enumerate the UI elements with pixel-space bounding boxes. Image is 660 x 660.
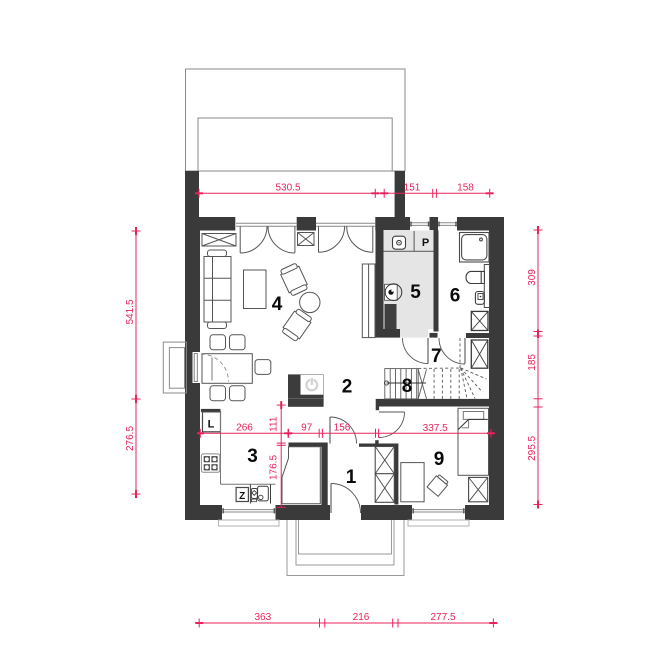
svg-text:Z: Z	[239, 491, 245, 502]
svg-text:158: 158	[457, 183, 474, 194]
svg-text:277.5: 277.5	[430, 612, 455, 623]
svg-text:1: 1	[346, 467, 357, 488]
svg-text:L: L	[208, 419, 215, 431]
svg-text:97: 97	[301, 422, 313, 433]
svg-text:176.5: 176.5	[268, 455, 279, 480]
svg-text:216: 216	[353, 612, 370, 623]
svg-text:4: 4	[272, 294, 283, 315]
svg-text:276.5: 276.5	[125, 426, 136, 451]
svg-text:309: 309	[527, 269, 538, 286]
svg-text:2: 2	[342, 377, 353, 398]
svg-text:295.5: 295.5	[527, 435, 538, 460]
svg-text:3: 3	[247, 446, 258, 467]
svg-text:151: 151	[404, 183, 421, 194]
svg-text:337.5: 337.5	[423, 423, 448, 434]
svg-text:111: 111	[268, 416, 279, 432]
svg-text:185: 185	[527, 354, 538, 371]
svg-text:156: 156	[334, 423, 351, 434]
svg-text:5: 5	[410, 282, 421, 303]
svg-text:8: 8	[402, 376, 413, 397]
svg-text:530.5: 530.5	[275, 183, 300, 194]
svg-text:9: 9	[434, 449, 445, 470]
svg-text:7: 7	[431, 346, 442, 367]
svg-text:266: 266	[236, 422, 253, 433]
svg-text:363: 363	[254, 612, 271, 623]
svg-text:6: 6	[450, 286, 461, 307]
svg-text:P: P	[422, 237, 429, 249]
svg-text:541.5: 541.5	[125, 299, 136, 324]
